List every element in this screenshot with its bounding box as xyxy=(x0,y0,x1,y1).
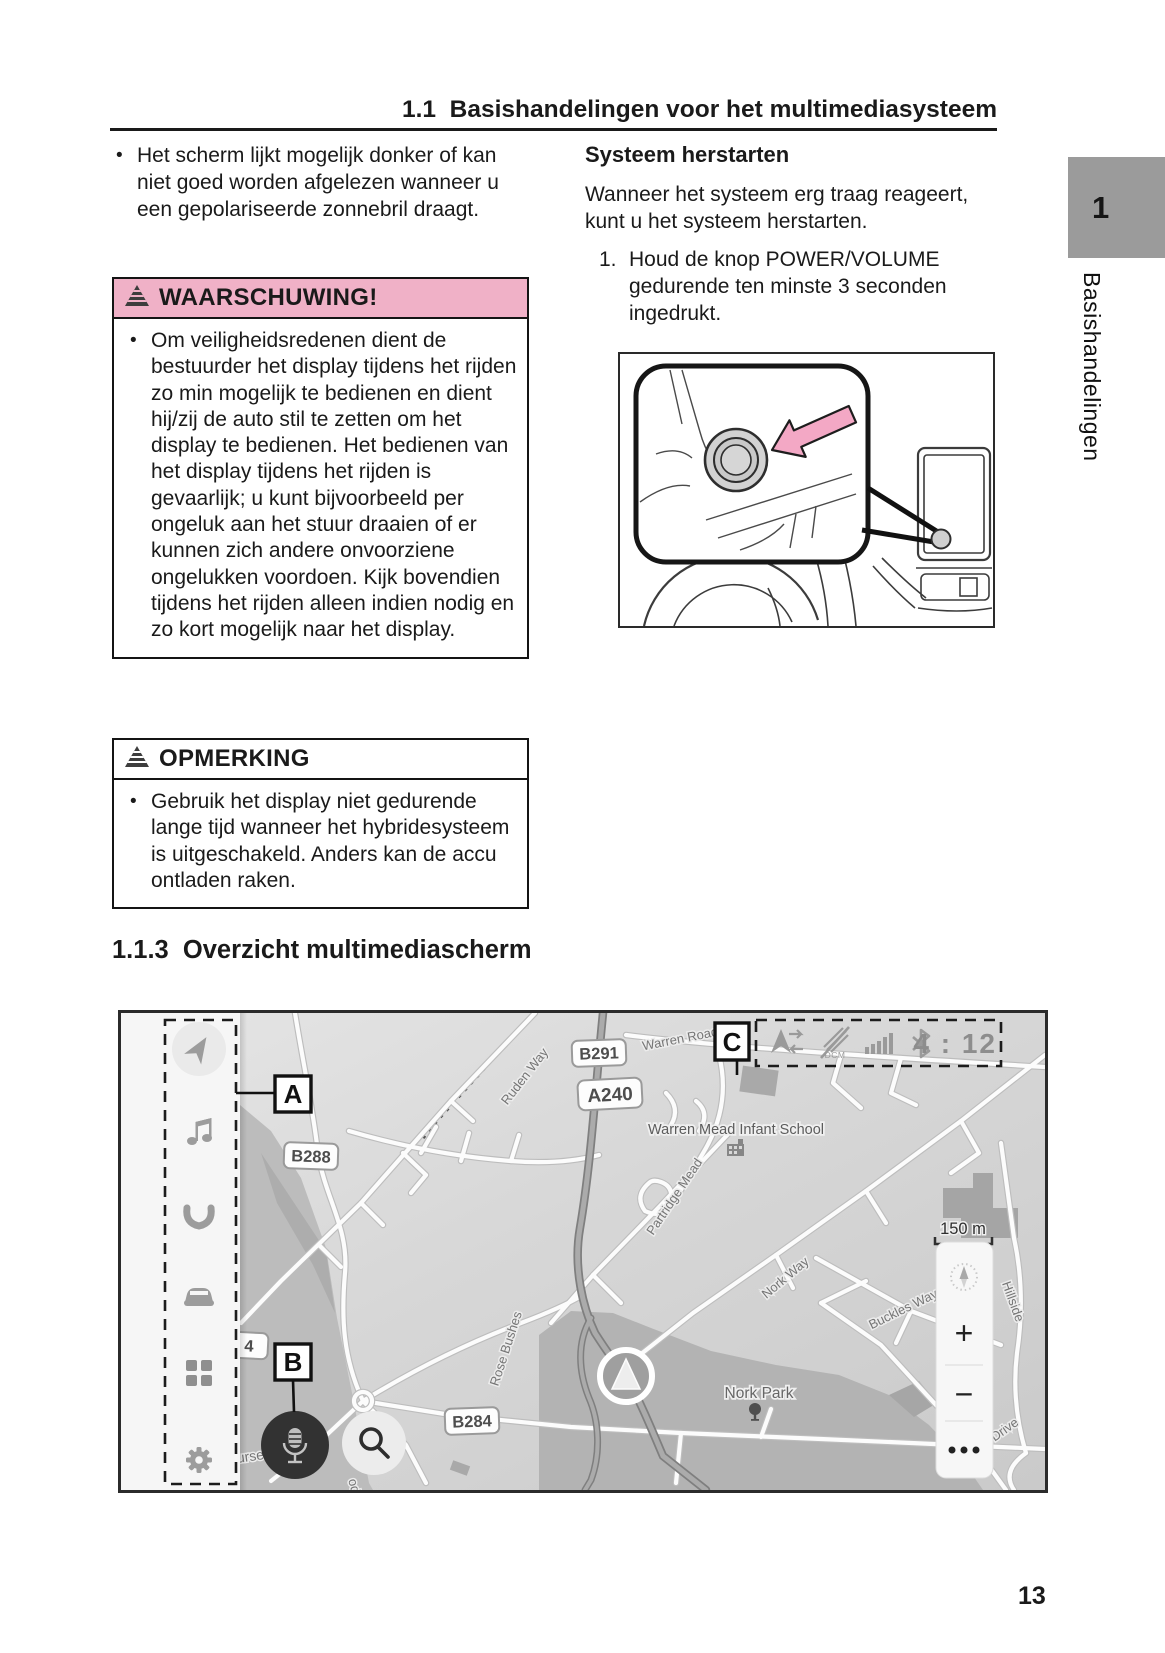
svg-text:C: C xyxy=(723,1027,742,1057)
power-volume-knob[interactable] xyxy=(705,429,767,491)
chapter-number: 1 xyxy=(1092,190,1109,226)
svg-text:B284: B284 xyxy=(452,1412,493,1431)
chapter-tab: 1 xyxy=(1068,157,1165,258)
zoom-out-button[interactable]: − xyxy=(955,1376,974,1412)
callout-b: B xyxy=(275,1344,311,1380)
note-body: Gebruik het display niet gedurende lange… xyxy=(114,780,527,907)
dashboard-knob xyxy=(932,530,951,549)
step-text: Houd de knop POWER/VOLUME gedurende ten … xyxy=(629,246,999,327)
chapter-vertical-label: Basishandelingen xyxy=(1078,272,1105,487)
microphone-button[interactable] xyxy=(261,1411,329,1479)
intro-bullet-list: Het scherm lijkt mogelijk donker of kan … xyxy=(112,142,530,223)
page-header-title: 1.1 Basishandelingen voor het multimedia… xyxy=(112,96,997,124)
svg-text:Nork Park: Nork Park xyxy=(725,1385,794,1402)
svg-text:B288: B288 xyxy=(291,1147,331,1166)
section-heading: 1.1.3 Overzicht multimediascherm xyxy=(112,936,532,965)
step-number: 1. xyxy=(599,246,629,327)
page-number: 13 xyxy=(1018,1582,1046,1611)
map-controls-panel: + − xyxy=(936,1242,993,1478)
svg-text:150 m: 150 m xyxy=(940,1220,986,1238)
note-text: Gebruik het display niet gedurende lange… xyxy=(126,789,519,894)
clock: 4 : 12 xyxy=(913,1028,997,1059)
manual-page: 1.1 Basishandelingen voor het multimedia… xyxy=(0,0,1165,1653)
warning-triangle-icon xyxy=(124,745,150,773)
callout-c: C xyxy=(715,1023,749,1060)
callout-a: A xyxy=(275,1076,311,1112)
warning-body: Om veiligheidsredenen dient de bestuurde… xyxy=(114,319,527,657)
header-rule xyxy=(110,128,997,131)
svg-text:A: A xyxy=(284,1079,303,1109)
search-button[interactable] xyxy=(342,1411,406,1475)
warning-text: Om veiligheidsredenen dient de bestuurde… xyxy=(126,328,519,644)
note-box-header: OPMERKING xyxy=(114,740,527,780)
note-box: OPMERKING Gebruik het display niet gedur… xyxy=(112,738,529,909)
more-options-button[interactable] xyxy=(949,1447,980,1454)
settings-gear-icon[interactable] xyxy=(186,1447,212,1473)
zoom-in-button[interactable]: + xyxy=(955,1315,974,1351)
current-location-marker xyxy=(600,1350,652,1402)
warning-box: WAARSCHUWING! Om veiligheidsredenen dien… xyxy=(112,277,529,659)
svg-text:B: B xyxy=(284,1347,303,1377)
svg-text:A240: A240 xyxy=(587,1084,633,1107)
multimedia-screen-figure: Warren Road Ruden Way Partridge Mead Ros… xyxy=(118,1010,1048,1493)
power-button-illustration xyxy=(618,352,995,628)
subsection-heading: Systeem herstarten xyxy=(585,142,789,168)
numbered-step: 1. Houd de knop POWER/VOLUME gedurende t… xyxy=(599,246,999,327)
warning-box-header: WAARSCHUWING! xyxy=(114,279,527,319)
map-canvas[interactable]: Warren Road Ruden Way Partridge Mead Ros… xyxy=(121,1013,1045,1490)
launcher-sidebar xyxy=(121,1013,247,1490)
warning-title: WAARSCHUWING! xyxy=(159,284,378,312)
restart-paragraph: Wanneer het systeem erg traag reageert, … xyxy=(585,181,997,235)
callout-pointer xyxy=(862,488,938,542)
warning-triangle-icon xyxy=(124,284,150,312)
bullet-item: Het scherm lijkt mogelijk donker of kan … xyxy=(112,142,530,223)
svg-text:Warren Mead Infant School: Warren Mead Infant School xyxy=(648,1122,824,1138)
svg-text:B291: B291 xyxy=(579,1044,619,1063)
note-title: OPMERKING xyxy=(159,745,310,773)
